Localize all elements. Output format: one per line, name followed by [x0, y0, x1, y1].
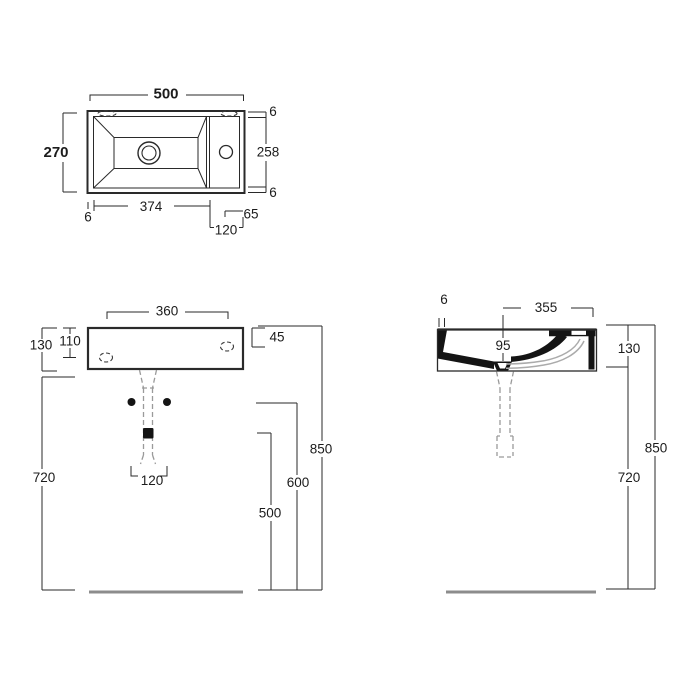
section-tap-hole — [572, 331, 587, 335]
dim-side-drain-to-wall: 355 — [535, 300, 558, 315]
drain-hole-outer — [138, 142, 160, 164]
front-view-body — [88, 328, 243, 369]
dim-front-floor-to-underside: 720 — [33, 470, 56, 485]
section-back-wall — [589, 334, 595, 370]
wall-bolt-right — [163, 398, 171, 406]
dim-side-floor-to-underside: 720 — [618, 470, 641, 485]
top-view-inner-rim — [94, 117, 240, 189]
section-front-wall — [438, 330, 495, 369]
top-view-deck-divider — [207, 117, 210, 189]
top-view-basin-bevels — [94, 117, 207, 189]
dim-top-depth: 270 — [43, 144, 68, 161]
dim-top-width: 500 — [153, 86, 178, 103]
dim-front-fixing-span: 360 — [156, 304, 179, 319]
top-view: 500 270 6 258 6 6 374 120 65 — [43, 86, 279, 238]
front-fixing-hole-right — [221, 342, 234, 351]
dim-top-rim-left: 6 — [84, 210, 92, 225]
dim-top-rim-bottom: 6 — [269, 185, 277, 200]
dim-front-floor-to-bolts: 600 — [287, 475, 310, 490]
front-view-dimension-lines — [42, 312, 322, 590]
side-view: 6 355 95 130 720 850 — [438, 292, 668, 592]
dim-top-tap-to-edge: 65 — [243, 207, 258, 222]
dim-top-basin-width: 374 — [140, 199, 163, 214]
dim-top-deck-width: 120 — [215, 223, 238, 238]
waste-hose — [506, 339, 584, 368]
dim-side-drain-offset: 95 — [495, 338, 510, 353]
dim-front-fixing-drop: 110 — [59, 334, 81, 349]
side-drain-pipe — [497, 372, 514, 458]
drain-hole-inner — [142, 146, 156, 160]
dim-front-floor-to-trap: 500 — [259, 506, 282, 521]
dim-side-floor-to-rim: 850 — [645, 441, 668, 456]
dim-front-bolt-span: 120 — [141, 473, 164, 488]
wall-bolt-left — [128, 398, 136, 406]
front-view: 360 130 110 45 120 720 850 600 500 — [30, 304, 333, 593]
front-fixing-hole-left — [100, 353, 113, 362]
section-basin-back-slope — [511, 333, 567, 363]
dim-top-basin-depth: 258 — [257, 145, 280, 160]
drawing-canvas: 500 270 6 258 6 6 374 120 65 360 130 110… — [0, 0, 699, 699]
top-view-outer-rim — [88, 111, 245, 193]
front-drain-pipe — [140, 370, 157, 464]
trap-valve — [143, 428, 154, 439]
dim-front-height: 130 — [30, 338, 53, 353]
washbasin-technical-drawing: 500 270 6 258 6 6 374 120 65 360 130 110… — [0, 0, 699, 699]
dim-side-height: 130 — [618, 341, 641, 356]
dim-top-rim-top: 6 — [269, 104, 277, 119]
dim-side-rim-thickness: 6 — [440, 292, 448, 307]
dim-front-tap-drop: 45 — [269, 330, 284, 345]
dim-front-floor-to-rim: 850 — [310, 442, 333, 457]
tap-hole — [220, 146, 233, 159]
